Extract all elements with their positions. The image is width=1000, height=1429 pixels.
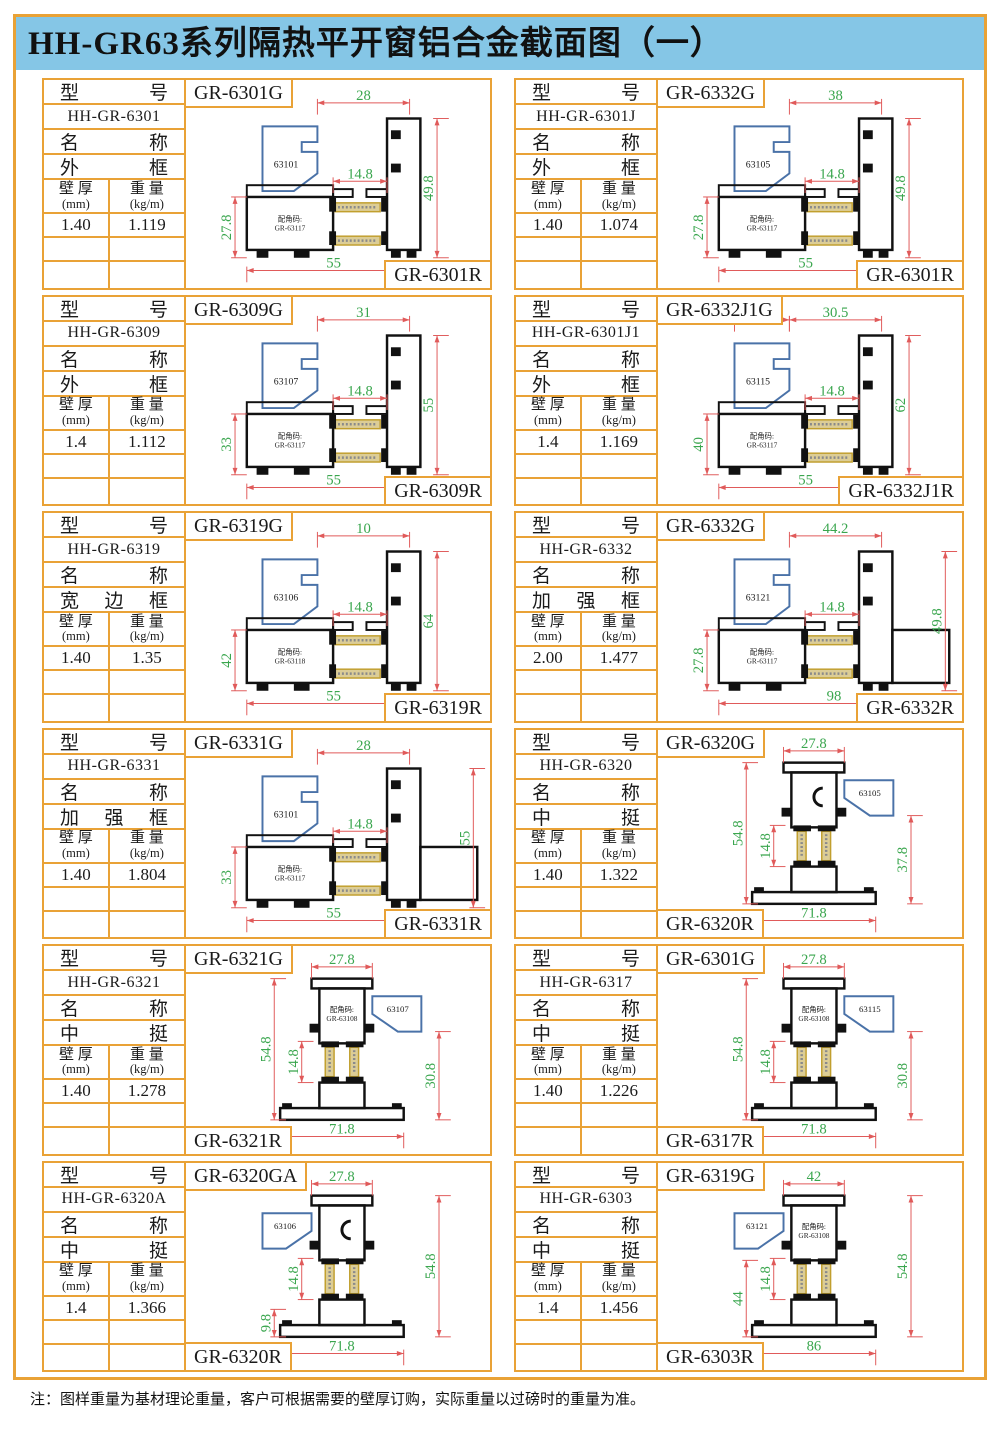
corner-code-label: 配角码:: [750, 215, 774, 224]
empty-cell: [516, 238, 582, 260]
spec-table: 型 号 HH-GR-6319 名 称 宽 边 框 壁 厚 (mm) 重 量 (k…: [44, 513, 186, 720]
empty-cell: [44, 479, 110, 504]
g-label: GR-6320G: [656, 728, 765, 758]
model-value: HH-GR-6309: [68, 324, 161, 342]
dim-label: 62: [893, 397, 909, 412]
dim-label: 42: [219, 653, 235, 668]
g-label: GR-6319G: [184, 511, 293, 541]
empty-cell: [516, 262, 582, 287]
model-label-row: 型 号: [44, 730, 184, 755]
bead-profile-number: 63107: [274, 376, 299, 387]
empty-cell: [44, 455, 110, 477]
model-label: 型 号: [44, 511, 184, 538]
profile-cell: 型 号 HH-GR-6331 名 称 加 强 框 壁 厚 (mm) 重 量 (k…: [42, 728, 492, 939]
empty-row: [44, 1345, 184, 1370]
weight-unit: (kg/m): [602, 1280, 636, 1293]
empty-cell: [110, 238, 184, 260]
weight-unit: (kg/m): [130, 1063, 164, 1076]
empty-cell: [44, 238, 110, 260]
corner-code-label: 配角码:: [750, 648, 774, 657]
dim-label: 54.8: [895, 1253, 911, 1279]
empty-cell: [516, 1128, 582, 1153]
values-row: 2.00 1.477: [516, 647, 656, 671]
bead-profile-number: 63121: [746, 593, 771, 604]
thickness-label: 壁 厚: [531, 615, 565, 631]
units-header-row: 壁 厚 (mm) 重 量 (kg/m): [44, 180, 184, 214]
units-header-row: 壁 厚 (mm) 重 量 (kg/m): [516, 830, 656, 864]
empty-cell: [516, 1104, 582, 1126]
units-header-row: 壁 厚 (mm) 重 量 (kg/m): [516, 1046, 656, 1080]
profile-drawing-area: 63101配角码:GR-631172814.827.849.855 GR-630…: [186, 80, 490, 287]
dim-label: 55: [798, 256, 813, 272]
spec-table: 型 号 HH-GR-6320A 名 称 中 挺 壁 厚 (mm) 重 量 (kg…: [44, 1163, 186, 1370]
profile-drawing-area: 配角码:GR-6310863121424414.854.886 GR-6319G…: [658, 1163, 962, 1370]
empty-cell: [582, 1128, 656, 1153]
dim-label: 28: [356, 737, 371, 753]
corner-code: GR-63118: [275, 656, 306, 665]
thickness-value: 1.40: [44, 1080, 110, 1102]
model-value-row: HH-GR-6319: [44, 538, 184, 563]
base-flange: [752, 892, 876, 904]
thickness-value: 1.4: [516, 1297, 582, 1319]
dim-label: 14.8: [286, 1266, 302, 1292]
name-label: 名 称: [44, 561, 184, 588]
weight-unit: (kg/m): [130, 847, 164, 860]
bead-profile-number: 63115: [859, 1004, 881, 1014]
thickness-header: 壁 厚 (mm): [516, 180, 582, 212]
empty-cell: [516, 671, 582, 693]
profile-cell: 型 号 HH-GR-6301J1 名 称 外 框 壁 厚 (mm) 重 量 (k…: [514, 295, 964, 506]
dim-label: 28: [356, 88, 371, 104]
model-value-row: HH-GR-6321: [44, 971, 184, 996]
profile-part: [838, 406, 859, 414]
weight-header: 重 量 (kg/m): [110, 180, 184, 212]
profile-cross-section: 63105配角码:GR-631173814.827.849.855: [658, 80, 962, 287]
profile-cross-section: 6310527.854.814.837.871.8: [658, 730, 962, 937]
dim-label: 71.8: [801, 1122, 827, 1138]
empty-row: [516, 479, 656, 504]
model-label-row: 型 号: [516, 80, 656, 105]
model-value: HH-GR-6301J1: [532, 324, 640, 342]
r-label: GR-6301R: [384, 260, 492, 290]
dim-label: 14.8: [347, 816, 373, 832]
empty-row: [516, 262, 656, 287]
profile-drawing-area: 配角码:GR-631086311527.854.814.830.871.8 GR…: [658, 946, 962, 1153]
thickness-label: 壁 厚: [531, 398, 565, 414]
empty-cell: [516, 455, 582, 477]
weight-header: 重 量 (kg/m): [582, 180, 656, 212]
thickness-header: 壁 厚 (mm): [44, 613, 110, 645]
profile-part: [366, 839, 387, 847]
spec-table: 型 号 HH-GR-6309 名 称 外 框 壁 厚 (mm) 重 量 (kg/…: [44, 297, 186, 504]
model-label: 型 号: [516, 295, 656, 322]
weight-value: 1.278: [110, 1080, 184, 1102]
profile-part: [333, 839, 353, 847]
model-label-row: 型 号: [516, 513, 656, 538]
corner-code: GR-63108: [326, 1014, 357, 1023]
values-row: 1.40 1.278: [44, 1080, 184, 1104]
empty-cell: [516, 912, 582, 937]
r-label: GR-6320R: [184, 1342, 292, 1372]
weight-label: 重 量: [602, 615, 636, 631]
dim-label: 55: [457, 830, 473, 845]
model-value-row: HH-GR-6320A: [44, 1188, 184, 1213]
empty-cell: [516, 1345, 582, 1370]
name-label-row: 名 称: [44, 780, 184, 805]
weight-unit: (kg/m): [130, 1280, 164, 1293]
spec-table: 型 号 HH-GR-6320 名 称 中 挺 壁 厚 (mm) 重 量 (kg/…: [516, 730, 658, 937]
empty-cell: [582, 888, 656, 910]
name-label-row: 名 称: [44, 996, 184, 1021]
empty-cell: [582, 1345, 656, 1370]
units-header-row: 壁 厚 (mm) 重 量 (kg/m): [44, 830, 184, 864]
profile-part: [333, 189, 353, 197]
name-value-row: 加 强 框: [516, 588, 656, 613]
model-label-row: 型 号: [516, 730, 656, 755]
name-label: 名 称: [44, 1211, 184, 1238]
thickness-value: 1.40: [516, 214, 582, 236]
name-value: 中 挺: [44, 1019, 184, 1046]
model-label: 型 号: [516, 78, 656, 105]
weight-header: 重 量 (kg/m): [582, 397, 656, 429]
dim-label: 30.5: [823, 305, 849, 321]
dim-label: 14.8: [347, 383, 373, 399]
thickness-unit: (mm): [62, 198, 90, 211]
corner-code: GR-63117: [275, 873, 306, 882]
weight-label: 重 量: [602, 1264, 636, 1280]
g-label: GR-6301G: [656, 944, 765, 974]
model-value: HH-GR-6321: [68, 974, 161, 992]
dim-label: 42: [807, 1168, 822, 1184]
model-value-row: HH-GR-6320: [516, 755, 656, 780]
model-value: HH-GR-6301J: [536, 108, 636, 126]
empty-cell: [516, 1321, 582, 1343]
empty-row: [44, 479, 184, 504]
empty-cell: [44, 888, 110, 910]
weight-label: 重 量: [602, 182, 636, 198]
model-label: 型 号: [516, 728, 656, 755]
r-label: GR-6309R: [384, 476, 492, 506]
weight-label: 重 量: [130, 398, 164, 414]
weight-header: 重 量 (kg/m): [582, 1046, 656, 1078]
bead-profile-number: 63106: [274, 593, 299, 604]
dim-label: 71.8: [329, 1338, 355, 1354]
weight-value: 1.456: [582, 1297, 656, 1319]
empty-cell: [516, 479, 582, 504]
corner-code-label: 配角码:: [278, 648, 302, 657]
thickness-label: 壁 厚: [531, 831, 565, 847]
empty-row: [44, 1128, 184, 1153]
profile-drawing-area: 63121配角码:GR-6311744.214.827.849.898 GR-6…: [658, 513, 962, 720]
model-value-row: HH-GR-6301J1: [516, 322, 656, 347]
name-value-row: 中 挺: [516, 1021, 656, 1046]
empty-cell: [110, 1321, 184, 1343]
profile-part: [805, 622, 825, 630]
dim-label: 27.8: [329, 1168, 355, 1184]
weight-header: 重 量 (kg/m): [582, 613, 656, 645]
profile-cross-section: 63106配角码:GR-631181014.8426455: [186, 513, 490, 720]
g-label: GR-6332G: [656, 511, 765, 541]
screw-boss: [814, 788, 823, 806]
bead-profile-number: 63105: [859, 788, 882, 798]
r-label: GR-6303R: [656, 1342, 764, 1372]
name-value: 外 框: [44, 370, 184, 397]
weight-unit: (kg/m): [130, 414, 164, 427]
dim-label: 30.8: [895, 1063, 911, 1089]
g-label: GR-6332J1G: [656, 295, 783, 325]
name-label-row: 名 称: [516, 130, 656, 155]
g-label: GR-6321G: [184, 944, 293, 974]
empty-cell: [516, 695, 582, 720]
profile-drawing-area: 63106配角码:GR-631181014.8426455 GR-6319G G…: [186, 513, 490, 720]
r-label: GR-6317R: [656, 1126, 764, 1156]
thickness-label: 壁 厚: [59, 1048, 93, 1064]
profile-part: [312, 979, 373, 989]
values-row: 1.4 1.456: [516, 1297, 656, 1321]
profile-part: [319, 1083, 364, 1108]
profile-part: [838, 189, 859, 197]
weight-label: 重 量: [130, 1264, 164, 1280]
model-label: 型 号: [44, 1161, 184, 1188]
empty-cell: [44, 1321, 110, 1343]
empty-row: [516, 888, 656, 912]
name-label-row: 名 称: [516, 780, 656, 805]
dim-label: 14.8: [819, 167, 845, 183]
dim-label: 14.8: [347, 599, 373, 615]
thickness-unit: (mm): [534, 414, 562, 427]
name-value: 中 挺: [516, 803, 656, 830]
thickness-value: 1.4: [44, 431, 110, 453]
name-label-row: 名 称: [44, 563, 184, 588]
dim-label: 14.8: [758, 1266, 774, 1292]
profile-cross-section: 配角码:GR-631086310727.854.814.830.871.8: [186, 946, 490, 1153]
weight-unit: (kg/m): [602, 1063, 636, 1076]
dim-label: 55: [326, 905, 341, 921]
bead-profile-number: 63115: [746, 376, 770, 387]
empty-row: [516, 1128, 656, 1153]
empty-cell: [582, 1321, 656, 1343]
bead-profile-number: 63106: [274, 1221, 297, 1231]
corner-code-label: 配角码:: [802, 1222, 826, 1231]
weight-value: 1.119: [110, 214, 184, 236]
thickness-value: 1.4: [516, 431, 582, 453]
screw-boss: [342, 1221, 351, 1239]
thickness-header: 壁 厚 (mm): [516, 1046, 582, 1078]
profile-part: [333, 406, 353, 414]
thickness-value: 2.00: [516, 647, 582, 669]
model-label-row: 型 号: [44, 513, 184, 538]
bead-profile-number: 63105: [746, 160, 771, 171]
base-flange: [280, 1325, 404, 1337]
model-label: 型 号: [44, 295, 184, 322]
spec-table: 型 号 HH-GR-6301J 名 称 外 框 壁 厚 (mm) 重 量 (kg…: [516, 80, 658, 287]
corner-code: GR-63117: [747, 656, 778, 665]
name-label: 名 称: [44, 778, 184, 805]
dim-label: 64: [421, 613, 437, 628]
profile-part: [319, 1299, 364, 1324]
profile-part: [312, 1195, 373, 1205]
profile-drawing-area: 63107配角码:GR-631173114.8335555 GR-6309G G…: [186, 297, 490, 504]
empty-row: [516, 238, 656, 262]
profile-cell: 型 号 HH-GR-6301 名 称 外 框 壁 厚 (mm) 重 量 (kg/…: [42, 78, 492, 289]
dim-label: 49.8: [421, 176, 437, 202]
dim-label: 86: [807, 1338, 822, 1354]
name-label-row: 名 称: [516, 347, 656, 372]
dim-label: 98: [827, 689, 842, 705]
name-label-row: 名 称: [44, 347, 184, 372]
thickness-unit: (mm): [62, 1063, 90, 1076]
r-label: GR-6319R: [384, 693, 492, 723]
weight-unit: (kg/m): [602, 414, 636, 427]
thickness-label: 壁 厚: [531, 1048, 565, 1064]
profile-drawing-area: 63101配角码:GR-631172814.8335555 GR-6331G G…: [186, 730, 490, 937]
spec-table: 型 号 HH-GR-6303 名 称 中 挺 壁 厚 (mm) 重 量 (kg/…: [516, 1163, 658, 1370]
weight-header: 重 量 (kg/m): [110, 1263, 184, 1295]
dim-label: 31: [356, 305, 371, 321]
values-row: 1.40 1.804: [44, 864, 184, 888]
bead-profile-number: 63107: [387, 1004, 410, 1014]
dim-label: 14.8: [819, 599, 845, 615]
thickness-value: 1.40: [44, 864, 110, 886]
empty-cell: [582, 671, 656, 693]
values-row: 1.40 1.119: [44, 214, 184, 238]
empty-cell: [110, 262, 184, 287]
empty-cell: [582, 238, 656, 260]
g-label: GR-6309G: [184, 295, 293, 325]
spec-table: 型 号 HH-GR-6317 名 称 中 挺 壁 厚 (mm) 重 量 (kg/…: [516, 946, 658, 1153]
name-label-row: 名 称: [516, 563, 656, 588]
profile-cross-section: 63101配角码:GR-631172814.8335555: [186, 730, 490, 937]
empty-row: [44, 238, 184, 262]
base-flange: [280, 1108, 404, 1120]
thickness-value: 1.40: [44, 214, 110, 236]
thickness-unit: (mm): [534, 1063, 562, 1076]
corner-code-label: 配角码:: [278, 864, 302, 873]
values-row: 1.4 1.112: [44, 431, 184, 455]
name-label-row: 名 称: [44, 130, 184, 155]
profile-part: [805, 406, 825, 414]
model-label: 型 号: [44, 78, 184, 105]
empty-row: [44, 671, 184, 695]
profile-part: [784, 979, 845, 989]
corner-code-label: 配角码:: [802, 1005, 826, 1014]
name-value-row: 中 挺: [44, 1021, 184, 1046]
dim-label: 10: [356, 521, 371, 537]
empty-cell: [582, 455, 656, 477]
profile-cross-section: 63121配角码:GR-6311744.214.827.849.898: [658, 513, 962, 720]
thickness-label: 壁 厚: [59, 831, 93, 847]
empty-cell: [110, 1104, 184, 1126]
units-header-row: 壁 厚 (mm) 重 量 (kg/m): [44, 1263, 184, 1297]
model-value-row: HH-GR-6303: [516, 1188, 656, 1213]
profile-part: [366, 622, 387, 630]
footnote: 注：图样重量为基材理论重量，客户可根据需要的壁厚订购，实际重量以过磅时的重量为准…: [30, 1388, 1000, 1409]
thickness-header: 壁 厚 (mm): [44, 1046, 110, 1078]
model-label-row: 型 号: [44, 297, 184, 322]
thickness-header: 壁 厚 (mm): [516, 1263, 582, 1295]
profile-part: [333, 622, 353, 630]
r-label: GR-6320R: [656, 909, 764, 939]
dim-label: 14.8: [286, 1049, 302, 1075]
units-header-row: 壁 厚 (mm) 重 量 (kg/m): [44, 397, 184, 431]
model-value: HH-GR-6301: [68, 108, 161, 126]
thickness-header: 壁 厚 (mm): [44, 830, 110, 862]
g-label: GR-6332G: [656, 78, 765, 108]
units-header-row: 壁 厚 (mm) 重 量 (kg/m): [516, 613, 656, 647]
dim-label: 27.8: [691, 215, 707, 241]
name-label: 名 称: [516, 561, 656, 588]
profile-part: [791, 866, 836, 891]
name-value-row: 中 挺: [44, 1238, 184, 1263]
profile-cell: 型 号 HH-GR-6317 名 称 中 挺 壁 厚 (mm) 重 量 (kg/…: [514, 944, 964, 1155]
bead-profile-number: 63101: [274, 809, 299, 820]
thickness-unit: (mm): [534, 630, 562, 643]
r-label: GR-6331R: [384, 909, 492, 939]
empty-row: [44, 455, 184, 479]
name-label-row: 名 称: [44, 1213, 184, 1238]
dim-label: 71.8: [801, 905, 827, 921]
profile-cell: 型 号 HH-GR-6321 名 称 中 挺 壁 厚 (mm) 重 量 (kg/…: [42, 944, 492, 1155]
dim-label: 33: [219, 870, 235, 885]
empty-row: [516, 695, 656, 720]
model-value-row: HH-GR-6301J: [516, 105, 656, 130]
dim-label: 44: [730, 1290, 746, 1305]
thickness-header: 壁 厚 (mm): [44, 397, 110, 429]
name-label: 名 称: [44, 128, 184, 155]
thickness-label: 壁 厚: [59, 615, 93, 631]
profile-drawing-area: 63115配角码:GR-631172030.514.8406255 GR-633…: [658, 297, 962, 504]
extension-profile: [892, 630, 949, 683]
dim-label: 27.8: [691, 648, 707, 674]
dim-label: 55: [326, 689, 341, 705]
profile-cell: 型 号 HH-GR-6303 名 称 中 挺 壁 厚 (mm) 重 量 (kg/…: [514, 1161, 964, 1372]
dim-label: 55: [326, 472, 341, 488]
weight-value: 1.804: [110, 864, 184, 886]
name-value: 外 框: [516, 370, 656, 397]
empty-cell: [44, 1104, 110, 1126]
dim-label: 49.8: [929, 608, 945, 634]
weight-unit: (kg/m): [130, 198, 164, 211]
thickness-unit: (mm): [534, 198, 562, 211]
thickness-label: 壁 厚: [59, 398, 93, 414]
dim-label: 27.8: [329, 952, 355, 968]
profile-cell: 型 号 HH-GR-6320 名 称 中 挺 壁 厚 (mm) 重 量 (kg/…: [514, 728, 964, 939]
dim-label: 14.8: [347, 167, 373, 183]
g-label: GR-6319G: [656, 1161, 765, 1191]
profile-cross-section: 63107配角码:GR-631173114.8335555: [186, 297, 490, 504]
model-value: HH-GR-6317: [540, 974, 633, 992]
dim-label: 54.8: [730, 1036, 746, 1062]
corner-code-label: 配角码:: [750, 431, 774, 440]
profile-part: [366, 189, 387, 197]
empty-cell: [110, 455, 184, 477]
weight-header: 重 量 (kg/m): [110, 613, 184, 645]
values-row: 1.4 1.366: [44, 1297, 184, 1321]
empty-cell: [582, 479, 656, 504]
name-label: 名 称: [516, 994, 656, 1021]
corner-code-label: 配角码:: [278, 431, 302, 440]
weight-value: 1.477: [582, 647, 656, 669]
dim-label: 30.8: [423, 1063, 439, 1089]
name-value: 外 框: [516, 153, 656, 180]
page-title: HH-GR63系列隔热平开窗铝合金截面图（一）: [16, 17, 984, 70]
values-row: 1.40 1.074: [516, 214, 656, 238]
corner-code-label: 配角码:: [278, 215, 302, 224]
empty-row: [44, 888, 184, 912]
thickness-label: 壁 厚: [531, 182, 565, 198]
empty-cell: [582, 262, 656, 287]
corner-code: GR-63117: [747, 224, 778, 233]
